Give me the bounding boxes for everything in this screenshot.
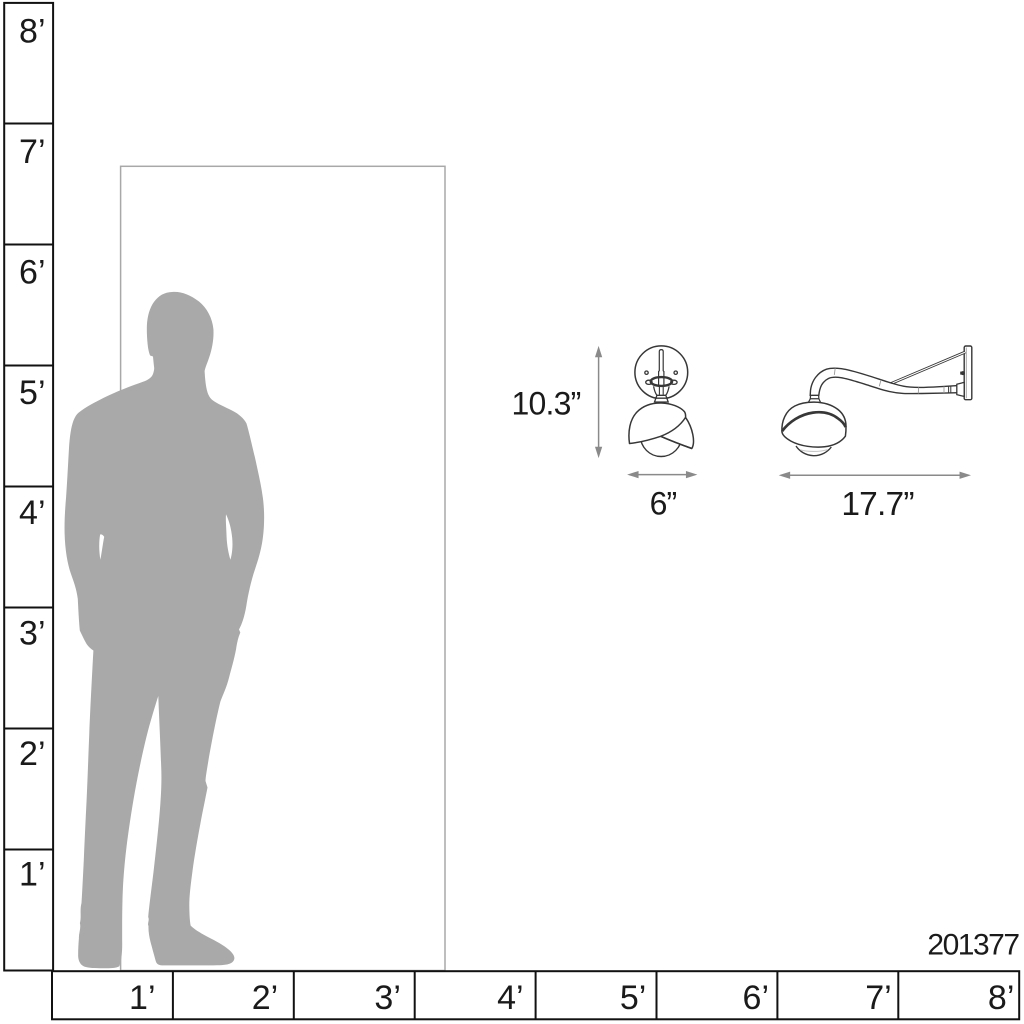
- svg-text:7’: 7’: [19, 133, 45, 171]
- svg-text:4’: 4’: [497, 979, 523, 1017]
- svg-text:6’: 6’: [743, 979, 769, 1017]
- svg-text:201377: 201377: [927, 929, 1019, 962]
- svg-text:3’: 3’: [19, 615, 45, 653]
- svg-text:1’: 1’: [19, 856, 45, 894]
- svg-text:3’: 3’: [374, 979, 400, 1017]
- svg-text:6’: 6’: [19, 253, 45, 291]
- svg-text:7’: 7’: [865, 979, 891, 1017]
- svg-text:5’: 5’: [620, 979, 646, 1017]
- svg-text:2’: 2’: [252, 979, 278, 1017]
- svg-text:8’: 8’: [19, 12, 45, 50]
- svg-text:8’: 8’: [988, 979, 1014, 1017]
- svg-text:4’: 4’: [19, 494, 45, 532]
- svg-text:17.7”: 17.7”: [841, 486, 913, 523]
- svg-text:1’: 1’: [129, 979, 155, 1017]
- svg-text:6”: 6”: [650, 486, 677, 522]
- svg-text:10.3”: 10.3”: [512, 385, 581, 421]
- svg-text:2’: 2’: [19, 735, 45, 773]
- svg-text:5’: 5’: [19, 374, 45, 412]
